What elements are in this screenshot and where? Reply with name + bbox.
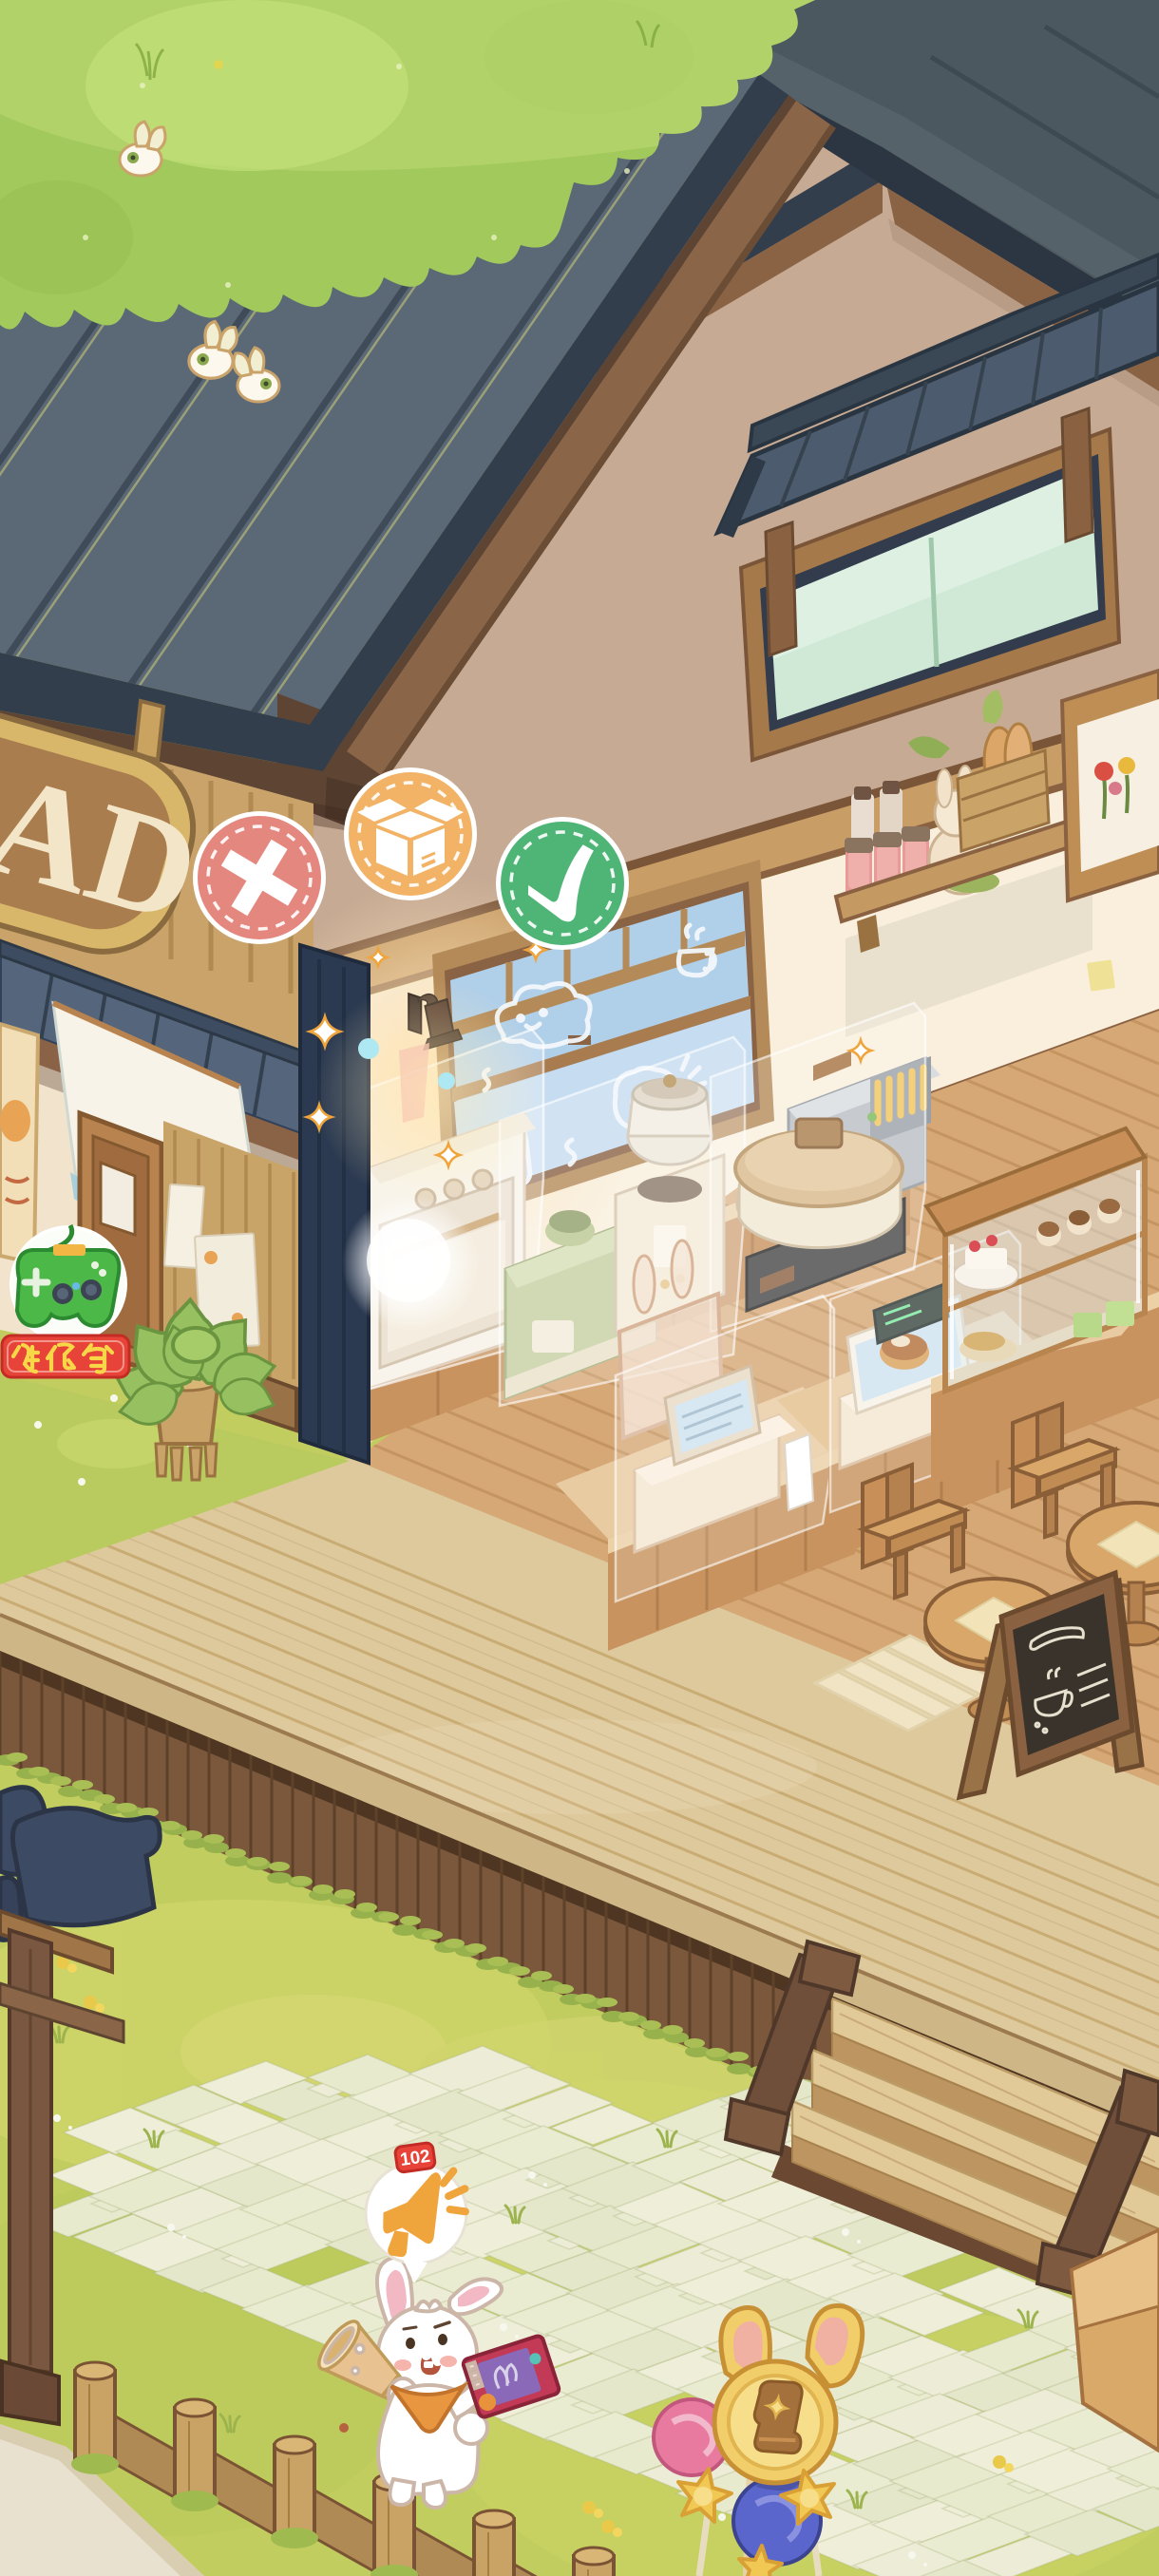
svg-text:102: 102 <box>399 2147 431 2170</box>
